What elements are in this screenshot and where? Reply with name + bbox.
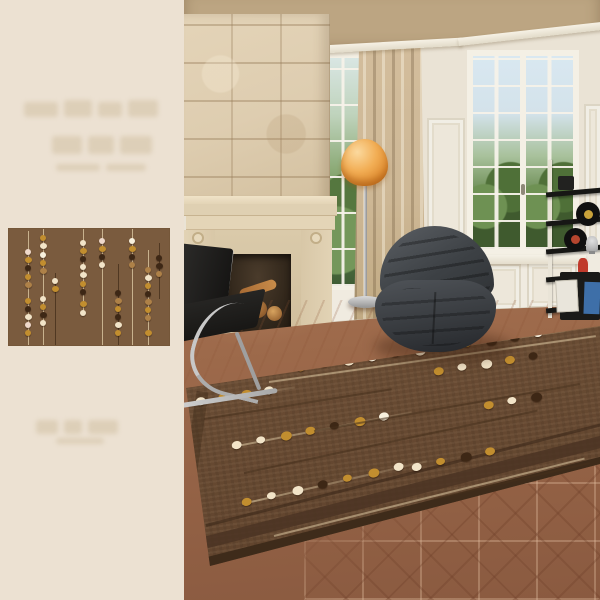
rug-dot — [40, 243, 47, 249]
rug-dot — [80, 256, 86, 262]
rug-dot — [292, 485, 305, 496]
stone-chimney-wall — [184, 14, 330, 214]
rug-dot — [115, 322, 122, 328]
rug-dot — [25, 314, 32, 320]
rug-dot — [393, 462, 405, 472]
rug-dot — [504, 355, 515, 364]
rug-dot — [25, 265, 31, 271]
rug-dot — [25, 249, 31, 255]
rug-dot — [528, 352, 538, 360]
rug-dot — [457, 363, 467, 371]
rug-dot — [145, 307, 151, 313]
rug-dot — [25, 274, 31, 280]
rug-dot — [25, 282, 32, 288]
rug-dot — [145, 299, 152, 305]
rug-dot — [25, 330, 31, 336]
rug-swatch-thumbnail — [8, 228, 170, 346]
fireplace-frieze — [186, 216, 335, 230]
record-label — [571, 235, 580, 244]
rug-dot — [115, 314, 121, 320]
rug-dot — [40, 260, 46, 266]
rug-dot — [433, 366, 444, 375]
rug-dot — [129, 246, 136, 252]
rug-dot — [145, 315, 151, 321]
window-handle — [521, 184, 525, 195]
trophy-cup — [586, 236, 598, 252]
window-pane — [473, 56, 520, 249]
rug-dot — [129, 262, 135, 268]
rug-dot — [25, 257, 32, 263]
rug-dot — [40, 304, 46, 310]
rug-dot — [99, 254, 105, 260]
wall-panel-molding — [584, 104, 600, 250]
rug-dot — [280, 430, 293, 441]
watermark-top — [22, 96, 162, 178]
room-photo — [184, 0, 600, 600]
rug-dot — [80, 248, 87, 254]
rug-dot — [115, 306, 121, 312]
rug-dot — [115, 290, 121, 296]
rug-dot — [80, 289, 86, 295]
rug-dot — [80, 272, 87, 278]
album-cover — [583, 282, 600, 315]
fireplace-mantel-face — [184, 204, 337, 216]
rug-dot — [156, 271, 162, 277]
rug-dot — [25, 298, 31, 304]
rug-dot — [460, 451, 473, 462]
corbel-scroll — [310, 232, 322, 244]
rug-dot — [80, 281, 86, 287]
corbel-scroll — [192, 232, 204, 244]
rug-dot — [156, 263, 163, 269]
rug-dot — [40, 312, 47, 318]
rug-dot — [80, 301, 87, 307]
rug-dot — [481, 359, 493, 370]
record-label — [584, 210, 593, 219]
rug-dot — [25, 322, 31, 328]
rug-dot — [80, 264, 86, 270]
left-panel — [0, 0, 184, 600]
album-cover — [555, 279, 579, 312]
rug-dot — [52, 278, 58, 284]
rug-dot — [80, 240, 86, 246]
rug-dot — [80, 310, 86, 316]
rug-dot — [99, 246, 106, 252]
rug-dot — [484, 446, 495, 456]
rug-dot — [40, 296, 46, 302]
rug-dot — [145, 291, 151, 297]
rug-dot — [115, 330, 121, 336]
rug-dot — [256, 436, 266, 445]
rug-dot — [145, 283, 151, 289]
rug-dot — [342, 474, 352, 483]
rug-dot — [99, 262, 105, 268]
rug-dot — [52, 286, 59, 292]
shelf-post — [548, 160, 552, 318]
product-image — [0, 0, 600, 600]
rug-thread-line — [314, 383, 580, 432]
rug-dot — [241, 497, 253, 507]
rug-dot — [145, 275, 152, 281]
rug-dot — [25, 306, 31, 312]
floor-lamp-stem — [364, 182, 367, 302]
rug-dot — [145, 330, 152, 336]
rug-dot — [40, 268, 47, 274]
floor-lamp-shade — [341, 139, 388, 186]
shelf-box — [558, 176, 574, 190]
rug-dot — [156, 255, 162, 261]
rug-dot — [145, 267, 151, 273]
rug-dot — [129, 238, 135, 244]
rug-dot — [266, 491, 276, 500]
vinyl-record — [576, 202, 600, 226]
vinyl-record — [564, 228, 587, 251]
rug-dot — [40, 252, 46, 258]
rug-dot — [368, 467, 381, 478]
rug-dot — [40, 320, 46, 326]
rug-dot — [317, 479, 329, 489]
fireplace-mantel-shelf — [184, 196, 337, 204]
rug-dot — [231, 440, 242, 450]
rug-dot — [99, 238, 105, 244]
rug-dot — [40, 235, 46, 241]
watermark-bottom — [36, 418, 122, 448]
rug-dot — [115, 298, 122, 304]
rug-dot — [129, 254, 135, 260]
